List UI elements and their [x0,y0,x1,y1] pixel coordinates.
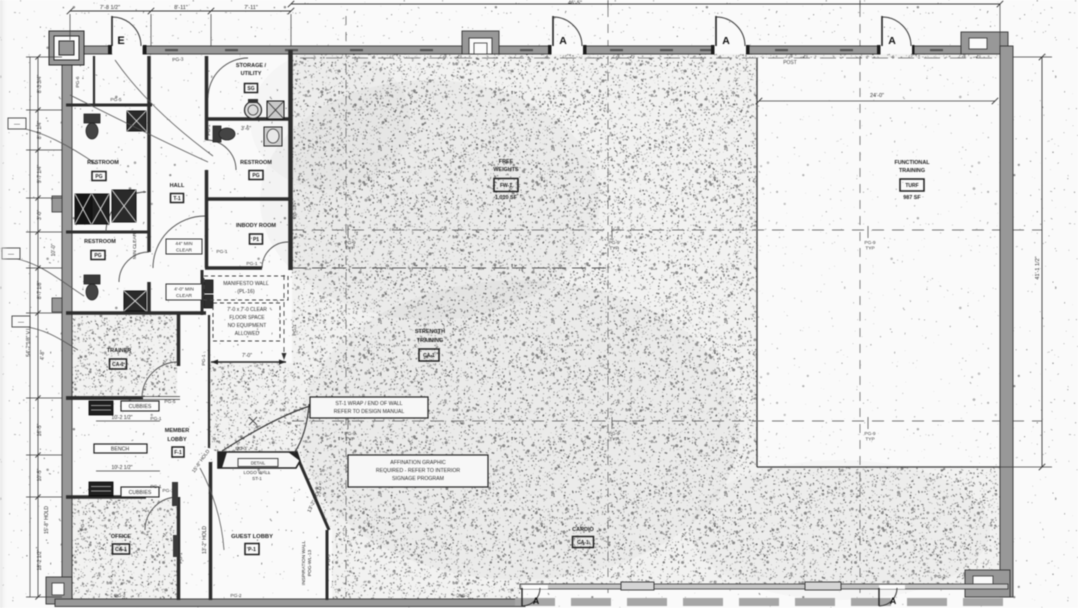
svg-text:PG-9: PG-9 [864,240,876,246]
svg-text:PG-5: PG-5 [164,399,176,405]
svg-text:41'-1 1/2": 41'-1 1/2" [1035,256,1041,279]
svg-text:9'-7 1/4": 9'-7 1/4" [37,165,43,184]
svg-text:STORAGE /: STORAGE / [236,63,267,69]
svg-text:TRAINER: TRAINER [107,348,131,354]
svg-text:4'-8": 4'-8" [40,350,46,360]
svg-text:PG-1: PG-1 [201,354,207,366]
svg-text:REQUIRED - REFER TO INTERIOR: REQUIRED - REFER TO INTERIOR [376,468,461,474]
svg-text:MANIFESTO WALL: MANIFESTO WALL [223,281,269,287]
svg-text:4'-0" MIN: 4'-0" MIN [174,287,194,293]
svg-text:1,010 SF: 1,010 SF [495,195,518,201]
svg-text:3'-6": 3'-6" [241,126,251,132]
svg-text:54'-7 1/8" V.I.F.: 54'-7 1/8" V.I.F. [26,323,32,356]
svg-text:(PL-16): (PL-16) [237,289,255,295]
svg-text:HALL: HALL [170,183,185,189]
svg-text:987 SF: 987 SF [903,195,921,201]
svg-text:A: A [722,35,730,47]
svg-text:PG-3: PG-3 [172,57,184,64]
svg-text:PG-1: PG-1 [162,488,174,494]
svg-text:8'-3 3/4": 8'-3 3/4" [37,75,43,94]
svg-text:PG-2: PG-2 [934,574,946,580]
svg-text:PG-1: PG-1 [246,261,258,267]
svg-text:SG: SG [247,86,254,92]
svg-text:8'-7 1/4": 8'-7 1/4" [37,121,43,140]
svg-text:CA-1: CA-1 [577,540,589,546]
svg-text:PG-1: PG-1 [178,552,184,564]
svg-text:FW-1: FW-1 [500,183,512,189]
svg-text:A: A [559,35,567,47]
svg-text:7'-11": 7'-11" [244,5,258,11]
svg-text:CA-1: CA-1 [423,353,435,359]
svg-text:TRAINING: TRAINING [417,338,444,344]
svg-text:PG-2: PG-2 [114,593,126,599]
svg-text:PG-9: PG-9 [344,431,356,437]
svg-text:TYP: TYP [609,437,618,443]
svg-text:LOGO WALL: LOGO WALL [244,470,271,475]
svg-text:BENCH: BENCH [111,447,129,453]
svg-text:8'-11": 8'-11" [174,5,188,11]
svg-text:10'-5": 10'-5" [37,468,43,481]
svg-text:10'-2 1/2": 10'-2 1/2" [111,415,132,421]
svg-text:CA-1: CA-1 [112,362,124,368]
svg-text:MEMBER: MEMBER [165,428,189,434]
svg-text:FREE: FREE [499,159,514,165]
svg-text:PG-9: PG-9 [864,431,876,437]
svg-text:ST-1: ST-1 [252,476,262,481]
svg-text:PG-1: PG-1 [150,416,162,422]
svg-text:46'-5": 46'-5" [568,1,582,7]
svg-text:PG-9: PG-9 [344,240,356,246]
svg-text:LOBBY: LOBBY [167,437,187,443]
svg-text:NO EQUIPMENT: NO EQUIPMENT [228,323,267,329]
svg-text:—: — [18,320,24,326]
svg-text:TYP: TYP [865,246,874,252]
svg-text:7'-8 1/2": 7'-8 1/2" [100,5,120,11]
svg-text:PG-3: PG-3 [235,446,247,452]
svg-text:PG-1: PG-1 [206,124,212,136]
svg-text:DETAIL: DETAIL [251,461,266,466]
svg-text:TYP: TYP [865,437,874,443]
svg-text:A: A [888,35,896,47]
svg-text:STRENGTH: STRENGTH [415,329,445,335]
svg-text:A: A [890,596,897,606]
svg-text:REFER TO DESIGN MANUAL: REFER TO DESIGN MANUAL [334,409,405,415]
svg-text:WEIGHTS: WEIGHTS [493,167,519,173]
svg-text:FUNCTIONAL: FUNCTIONAL [894,160,930,166]
svg-text:PG-6: PG-6 [75,76,81,88]
svg-text:13'-2" HOLD: 13'-2" HOLD [202,526,208,554]
svg-text:18'-2 1/2": 18'-2 1/2" [37,549,43,570]
svg-text:CARDIO: CARDIO [572,527,594,533]
svg-text:PG: PG [95,174,102,180]
svg-text:PG-5: PG-5 [110,97,122,103]
svg-text:—: — [8,252,14,258]
svg-text:E: E [117,35,124,47]
svg-text:FLOOR SPACE: FLOOR SPACE [229,315,265,321]
svg-text:PG-9: PG-9 [608,240,620,246]
svg-text:UTILITY: UTILITY [241,71,262,77]
svg-text:7'-0": 7'-0" [242,353,252,359]
svg-text:INSPIRATION WALL: INSPIRATION WALL [301,540,307,585]
svg-text:TURF: TURF [905,183,918,189]
svg-text:PG: PG [94,253,101,259]
svg-text:PG-3: PG-3 [326,554,332,566]
svg-text:A: A [533,596,540,606]
svg-text:8'-7 1/8": 8'-7 1/8" [37,281,43,300]
svg-text:CLEAR: CLEAR [176,248,193,254]
svg-text:CUBBIES: CUBBIES [129,404,152,410]
svg-text:—: — [14,122,20,128]
svg-text:INBODY ROOM: INBODY ROOM [236,223,276,229]
svg-text:24'-0": 24'-0" [870,93,884,99]
svg-text:PG-2: PG-2 [230,593,242,599]
svg-text:PG-4: PG-4 [80,519,86,531]
svg-text:RESTROOM: RESTROOM [84,239,116,245]
svg-text:POG-WL-13: POG-WL-13 [307,549,313,576]
svg-text:PG-2: PG-2 [458,593,470,599]
svg-text:AFFINATION GRAPHIC: AFFINATION GRAPHIC [390,460,446,466]
svg-text:PG: PG [252,173,259,179]
svg-text:MIN CLEAR: MIN CLEAR [132,232,138,259]
svg-text:PG-13: PG-13 [292,205,298,219]
svg-text:7'-0 x 7'-0 CLEAR: 7'-0 x 7'-0 CLEAR [227,307,267,313]
svg-text:44" MIN: 44" MIN [175,241,193,247]
svg-text:TYP: TYP [609,246,618,252]
svg-text:CLEAR: CLEAR [176,293,193,299]
svg-text:RESTROOM: RESTROOM [240,160,272,166]
svg-text:TRAINING: TRAINING [899,168,925,174]
svg-text:CA-1: CA-1 [115,547,127,553]
svg-text:POST: POST [783,60,797,66]
svg-text:ALLOWED: ALLOWED [235,331,260,337]
svg-text:TYP: TYP [345,246,354,252]
svg-text:10'-2 1/2": 10'-2 1/2" [111,465,132,471]
svg-text:OFFICE: OFFICE [111,534,131,540]
svg-text:SIGNAGE PROGRAM: SIGNAGE PROGRAM [392,476,444,482]
svg-text:PG-9: PG-9 [608,431,620,437]
svg-text:GUEST LOBBY: GUEST LOBBY [231,534,273,540]
svg-text:PG-1: PG-1 [216,249,228,255]
svg-text:3'-0": 3'-0" [37,210,43,220]
svg-text:ST-1 WRAP / END OF WALL: ST-1 WRAP / END OF WALL [335,401,402,407]
svg-text:CUBBIES: CUBBIES [129,490,152,496]
svg-text:10'-0": 10'-0" [51,243,57,256]
svg-text:F-1: F-1 [174,450,182,456]
svg-text:P-1: P-1 [248,547,256,553]
svg-text:15'-8" HOLD: 15'-8" HOLD [44,506,50,534]
svg-text:T-1: T-1 [173,196,180,202]
svg-text:TYP: TYP [345,437,354,443]
svg-text:PG-1: PG-1 [292,324,298,336]
svg-text:PG-1: PG-1 [150,484,162,490]
svg-text:P1: P1 [253,237,259,243]
svg-text:16'-5": 16'-5" [37,423,43,436]
svg-text:RESTROOM: RESTROOM [87,160,119,166]
